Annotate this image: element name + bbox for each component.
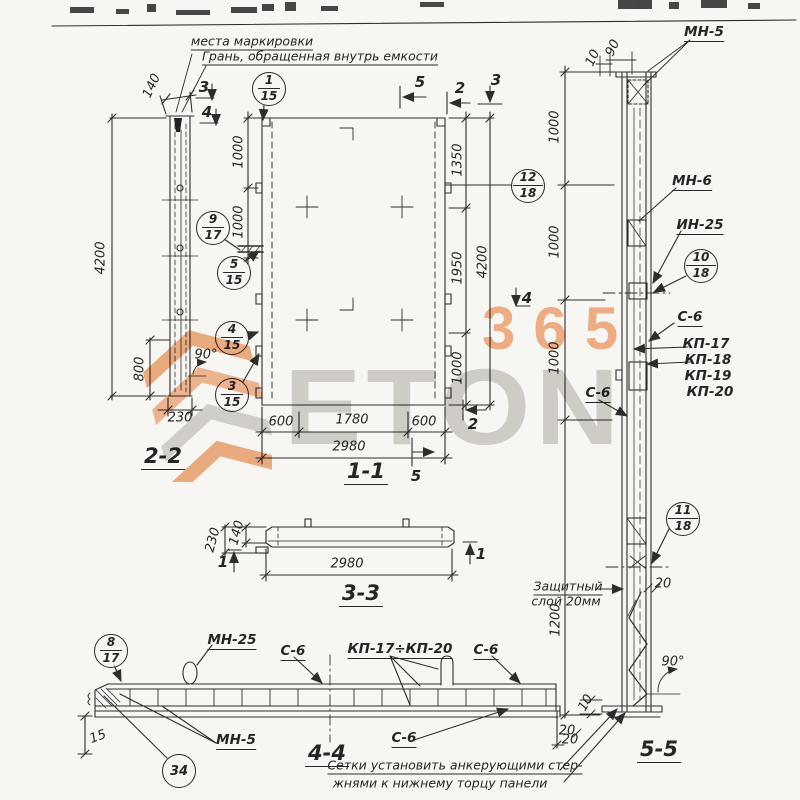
section-mark-2-bottom: 2 (468, 415, 478, 433)
blueprint-sheet: места маркировки Грань, обращенная внутр… (0, 0, 800, 800)
view-label-1-1: 1-1 (344, 459, 388, 485)
section-3-3-linework (221, 519, 477, 581)
callout-8-17: 8 17 (94, 634, 128, 668)
view-label-3-3: 3-3 (339, 581, 383, 607)
part-label-mn25: МН-25 (207, 632, 256, 650)
dim-1000-left-2: 1000 (232, 205, 247, 238)
bottom-note-line1: Сетки установить анкерующими стер- (327, 758, 582, 775)
dim-20-bottom-v55: 20 (559, 724, 576, 739)
dim-2980-v11: 2980 (332, 440, 365, 455)
callout-3-15: 3 15 (215, 378, 249, 412)
part-label-mn5-v55: МН-5 (684, 24, 724, 42)
dim-2980-v33: 2980 (330, 557, 363, 572)
part-label-mn5-v44: МН-5 (216, 732, 256, 750)
drawing-linework (0, 0, 800, 800)
dim-20-cover-v55: 20 (655, 577, 672, 592)
section-mark-4-left: 4 (202, 103, 212, 121)
section-5-5-linework (558, 40, 690, 782)
angle-90-v22: 90° (194, 348, 217, 363)
callout-4-15: 4 15 (215, 321, 249, 355)
callout-9-17: 9 17 (196, 211, 230, 245)
protective-layer-line2: слой 20мм (531, 594, 600, 609)
part-label-in25: ИН-25 (677, 217, 724, 235)
dim-4200-v22: 4200 (94, 241, 109, 274)
part-label-kp-range: КП-17÷КП-20 (348, 641, 453, 659)
section-mark-3-left: 3 (199, 78, 209, 96)
angle-90-v55: 90° (661, 655, 684, 670)
dim-1000-left-1: 1000 (232, 135, 247, 168)
dim-600-a: 600 (269, 415, 294, 430)
dim-1000-c3: 1000 (548, 341, 563, 374)
part-label-mn6: МН-6 (672, 173, 712, 191)
section-mark-4-right: 4 (522, 289, 532, 307)
section-mark-2-top: 2 (455, 79, 465, 97)
section-mark-1-left: 1 (218, 553, 228, 571)
dim-600-b: 600 (412, 415, 437, 430)
part-label-c6-left-v55: С-6 (586, 385, 611, 403)
dim-1780: 1780 (335, 413, 368, 428)
callout-12-18: 12 18 (511, 169, 545, 203)
dim-1950: 1950 (451, 251, 466, 284)
callout-34: 34 (162, 754, 196, 788)
dim-230-v22: 230 (168, 411, 193, 426)
part-label-kp18: КП-18 (685, 352, 732, 368)
dim-1350: 1350 (451, 143, 466, 176)
dim-800-v22: 800 (133, 357, 148, 382)
part-label-kp17: КП-17 (683, 336, 730, 352)
section-mark-5-bottom: 5 (411, 467, 421, 485)
dim-1000-c1: 1000 (548, 110, 563, 143)
marking-note-line2: Грань, обращенная внутрь емкости (202, 49, 438, 66)
part-label-c6-top-left: С-6 (281, 643, 306, 661)
section-mark-5-top: 5 (415, 73, 425, 91)
callout-5-15: 5 15 (217, 256, 251, 290)
part-label-c6-bottom: С-6 (392, 730, 417, 748)
dim-1000-c2: 1000 (548, 225, 563, 258)
section-mark-1-right: 1 (476, 545, 486, 563)
dim-1000-right: 1000 (451, 351, 466, 384)
part-label-kp20: КП-20 (687, 384, 734, 400)
part-label-kp19: КП-19 (685, 368, 732, 384)
callout-11-18: 11 18 (666, 502, 700, 536)
part-label-c6-right-v55: С-6 (678, 309, 703, 327)
view-label-5-5: 5-5 (637, 737, 681, 763)
view-label-2-2: 2-2 (141, 444, 185, 470)
callout-1-15: 1 15 (252, 72, 286, 106)
sheet-top-border (52, 0, 796, 26)
dim-4200-v11: 4200 (476, 245, 491, 278)
callout-10-18: 10 18 (684, 249, 718, 283)
section-mark-3-top: 3 (491, 71, 501, 89)
bottom-note-line2: жнями к нижнему торцу панели (333, 776, 548, 791)
part-label-c6-top-right: С-6 (474, 642, 499, 660)
